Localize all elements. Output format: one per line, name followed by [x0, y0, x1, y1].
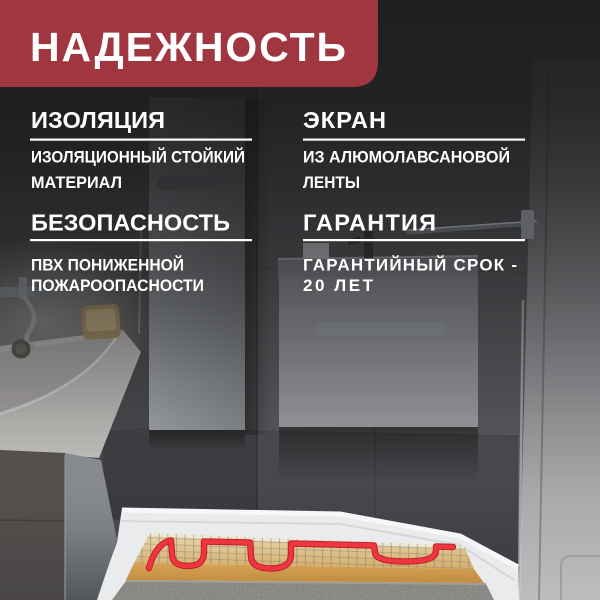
- svg-text:ПОЖАРООПАСНОСТИ: ПОЖАРООПАСНОСТИ: [31, 276, 204, 295]
- svg-text:ЛЕНТЫ: ЛЕНТЫ: [303, 173, 360, 192]
- svg-text:ГАРАНТИЙНЫЙ СРОК -: ГАРАНТИЙНЫЙ СРОК -: [303, 256, 517, 275]
- svg-text:ГАРАНТИЯ: ГАРАНТИЯ: [303, 210, 436, 236]
- svg-text:ЭКРАН: ЭКРАН: [303, 107, 386, 133]
- svg-text:ИЗОЛЯЦИОННЫЙ СТОЙКИЙ: ИЗОЛЯЦИОННЫЙ СТОЙКИЙ: [31, 148, 245, 167]
- svg-text:ИЗ АЛЮМОЛАВСАНОВОЙ: ИЗ АЛЮМОЛАВСАНОВОЙ: [303, 148, 510, 167]
- svg-text:ПВХ ПОНИЖЕННОЙ: ПВХ ПОНИЖЕННОЙ: [31, 256, 184, 275]
- svg-text:ИЗОЛЯЦИЯ: ИЗОЛЯЦИЯ: [31, 107, 165, 133]
- svg-text:БЕЗОПАСНОСТЬ: БЕЗОПАСНОСТЬ: [31, 210, 230, 236]
- svg-text:МАТЕРИАЛ: МАТЕРИАЛ: [31, 173, 122, 192]
- svg-text:НАДЕЖНОСТЬ: НАДЕЖНОСТЬ: [30, 24, 346, 70]
